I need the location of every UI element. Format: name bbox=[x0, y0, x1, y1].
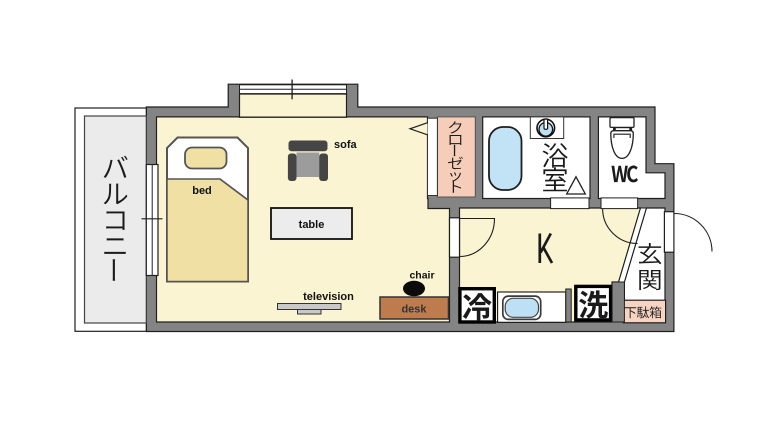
svg-text:table: table bbox=[299, 219, 325, 231]
svg-text:chair: chair bbox=[409, 270, 434, 282]
svg-text:sofa: sofa bbox=[334, 139, 358, 151]
svg-text:desk: desk bbox=[401, 304, 427, 316]
svg-text:television: television bbox=[303, 291, 354, 303]
svg-text:bed: bed bbox=[192, 185, 212, 197]
